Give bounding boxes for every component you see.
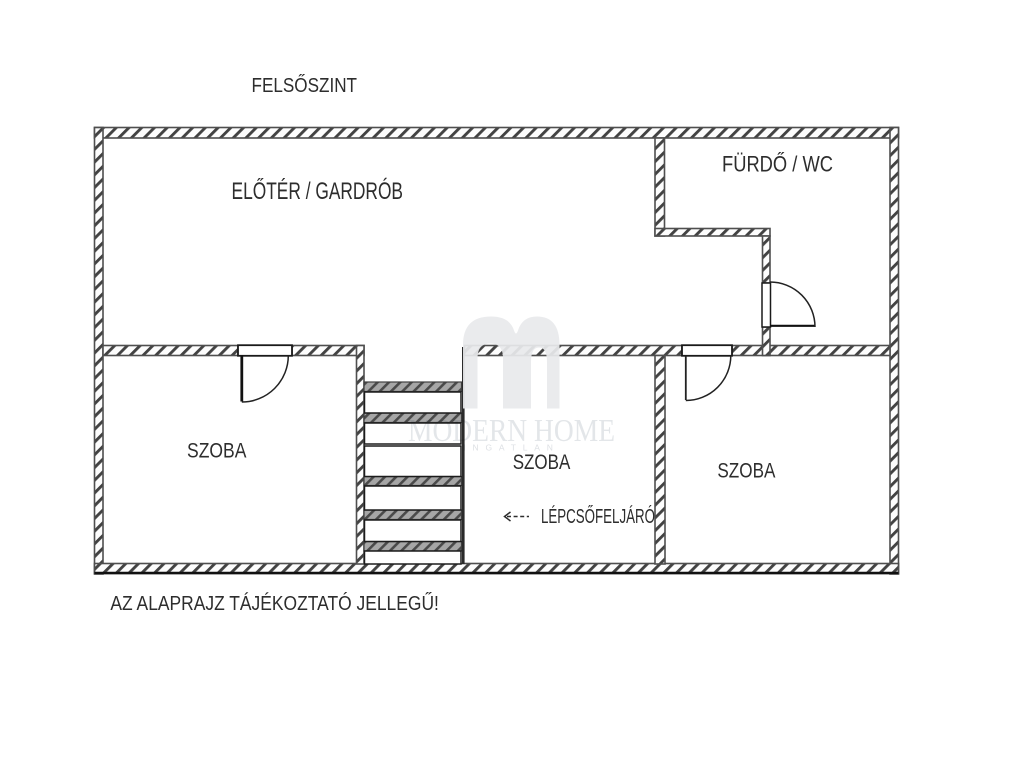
svg-text:FELSŐSZINT: FELSŐSZINT bbox=[252, 74, 358, 97]
svg-text:FÜRDŐ / WC: FÜRDŐ / WC bbox=[722, 152, 833, 177]
svg-text:LÉPCSŐFELJÁRÓ: LÉPCSŐFELJÁRÓ bbox=[541, 505, 655, 528]
svg-text:AZ ALAPRAJZ TÁJÉKOZTATÓ JELLEG: AZ ALAPRAJZ TÁJÉKOZTATÓ JELLEGŰ! bbox=[110, 592, 439, 615]
svg-text:SZOBA: SZOBA bbox=[187, 440, 246, 463]
svg-text:ELŐTÉR / GARDRÓB: ELŐTÉR / GARDRÓB bbox=[232, 178, 404, 205]
svg-text:INGATLAN: INGATLAN bbox=[463, 443, 559, 453]
svg-text:SZOBA: SZOBA bbox=[717, 459, 775, 482]
svg-text:SZOBA: SZOBA bbox=[513, 451, 571, 474]
